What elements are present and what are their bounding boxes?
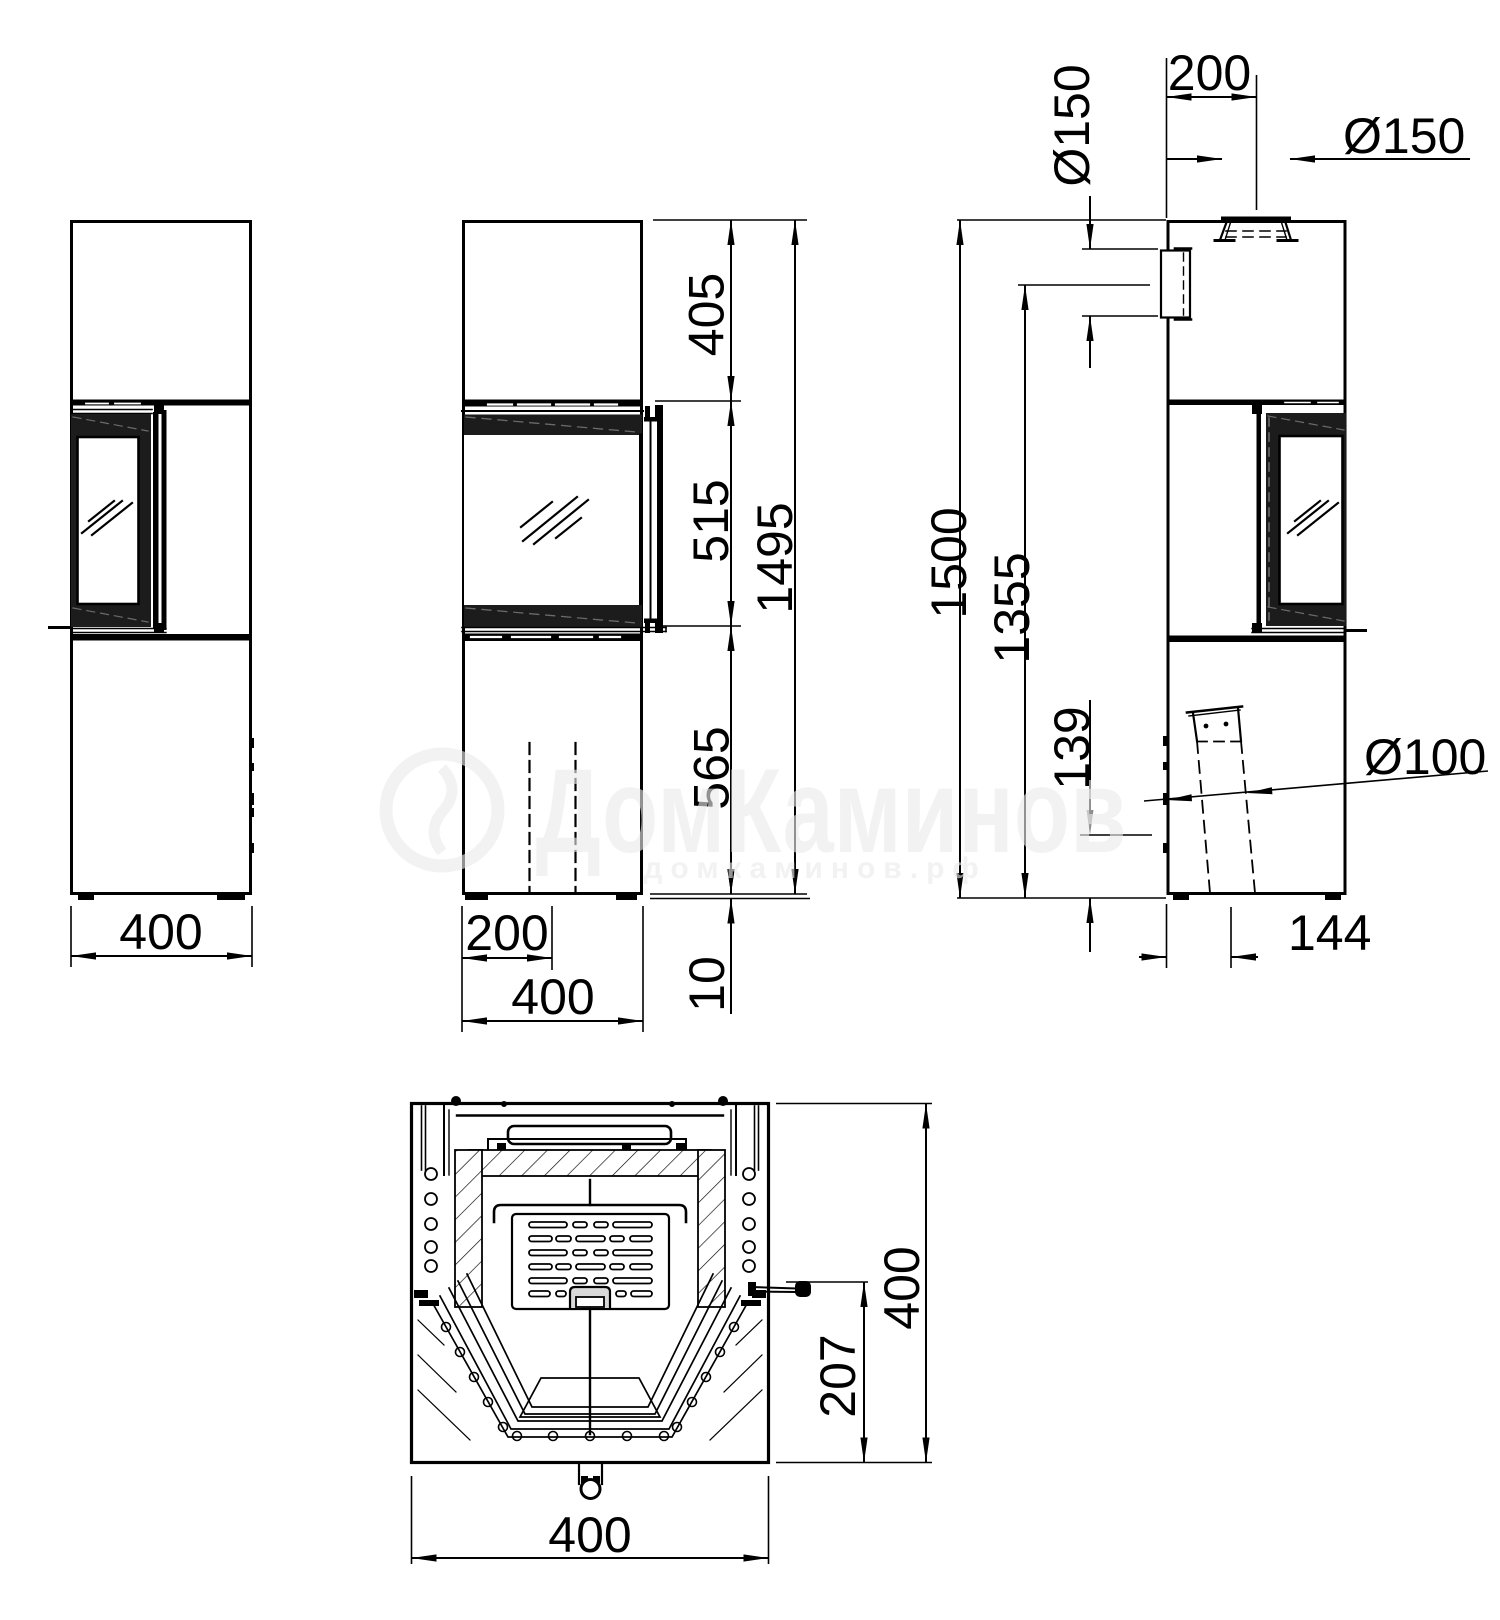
svg-text:515: 515 [683,479,739,562]
svg-text:200: 200 [465,905,548,961]
svg-text:10: 10 [679,956,735,1012]
svg-text:400: 400 [874,1246,930,1329]
svg-text:домкаминов.рф: домкаминов.рф [643,852,986,885]
svg-text:Ø100: Ø100 [1364,729,1486,785]
svg-text:400: 400 [511,969,594,1025]
svg-text:1500: 1500 [921,507,977,618]
svg-text:Ø150: Ø150 [1343,108,1465,164]
svg-text:Ø150: Ø150 [1044,64,1100,186]
svg-text:400: 400 [548,1507,631,1563]
svg-text:1495: 1495 [747,502,803,613]
svg-text:400: 400 [119,904,202,960]
svg-text:207: 207 [810,1334,866,1417]
svg-text:200: 200 [1168,45,1251,101]
svg-text:144: 144 [1288,905,1371,961]
svg-text:405: 405 [679,273,735,356]
svg-text:1355: 1355 [984,552,1040,663]
